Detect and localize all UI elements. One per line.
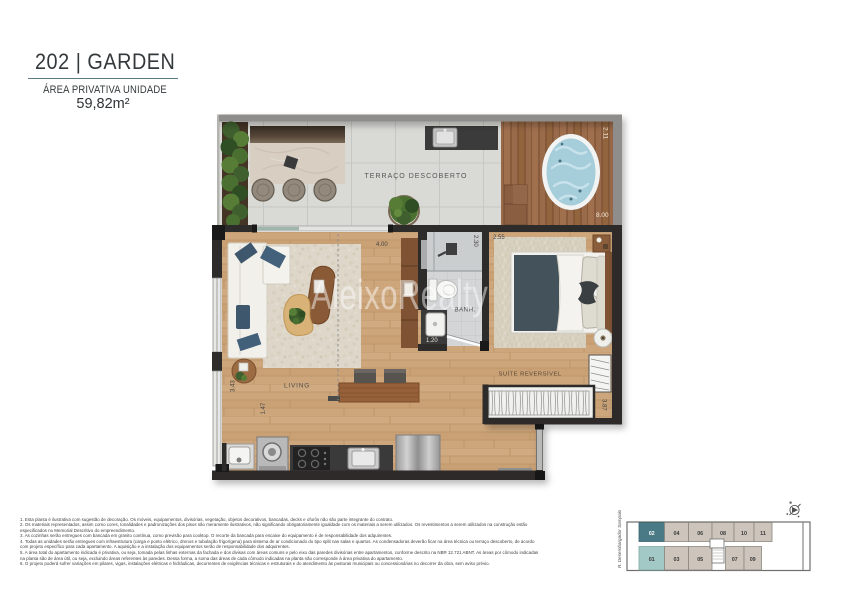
svg-text:3.43: 3.43 [231,380,237,392]
svg-text:02: 02 [649,531,655,537]
svg-text:07: 07 [732,557,738,563]
svg-text:10: 10 [741,531,747,537]
svg-text:08: 08 [720,531,726,537]
svg-text:01: 01 [649,557,655,563]
svg-text:4.00: 4.00 [376,242,388,248]
svg-text:2.55: 2.55 [493,235,505,241]
svg-text:8.00: 8.00 [596,212,609,219]
svg-text:AleixoRealty: AleixoRealty [311,271,488,318]
svg-text:1.20: 1.20 [426,338,438,344]
svg-text:1.47: 1.47 [261,402,267,414]
svg-text:TERRAÇO DESCOBERTO: TERRAÇO DESCOBERTO [365,173,468,180]
svg-text:06: 06 [697,531,703,537]
svg-text:SUÍTE REVERSÍVEL: SUÍTE REVERSÍVEL [498,371,561,378]
svg-text:3.87: 3.87 [601,399,607,411]
svg-text:2.11: 2.11 [602,127,609,140]
svg-text:03: 03 [674,557,680,563]
svg-text:04: 04 [674,531,680,537]
svg-text:2.30: 2.30 [472,235,478,247]
svg-text:05: 05 [697,557,703,563]
svg-text:R. Desembargador Sampaio: R. Desembargador Sampaio [617,509,622,568]
svg-text:LIVING: LIVING [284,383,310,390]
svg-text:09: 09 [750,557,756,563]
svg-text:11: 11 [760,531,766,537]
